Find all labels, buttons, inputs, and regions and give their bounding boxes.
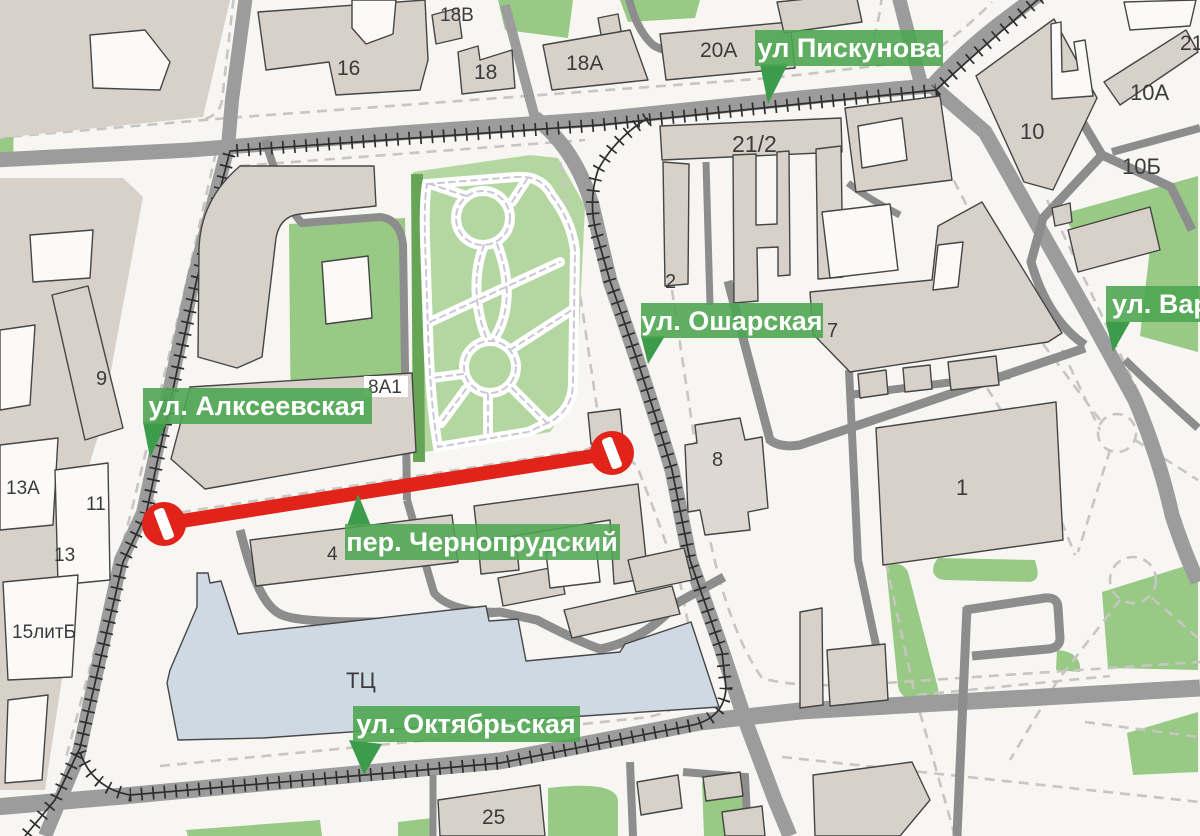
svg-text:ул. Ошарская: ул. Ошарская: [641, 306, 822, 336]
svg-text:25: 25: [482, 806, 505, 829]
svg-text:20А: 20А: [700, 39, 737, 62]
svg-text:16: 16: [337, 57, 360, 80]
svg-text:ул. Вар: ул. Вар: [1112, 289, 1200, 319]
svg-text:15литБ: 15литБ: [12, 622, 76, 643]
svg-text:9: 9: [96, 368, 107, 390]
svg-text:ул. Октябрьская: ул. Октябрьская: [356, 709, 575, 739]
svg-text:18: 18: [474, 61, 497, 84]
svg-text:21: 21: [1180, 32, 1200, 55]
svg-text:ТЦ: ТЦ: [346, 668, 376, 693]
svg-text:10: 10: [1020, 119, 1044, 144]
svg-text:4: 4: [327, 544, 338, 565]
svg-text:10Б: 10Б: [1122, 154, 1161, 179]
svg-text:ул. Алксеевская: ул. Алксеевская: [149, 391, 366, 421]
svg-text:1: 1: [956, 475, 968, 500]
svg-text:пер. Чернопрудский: пер. Чернопрудский: [346, 527, 617, 557]
svg-text:18В: 18В: [440, 5, 474, 26]
svg-text:13А: 13А: [6, 478, 40, 499]
svg-text:10А: 10А: [1130, 80, 1169, 105]
svg-text:13: 13: [54, 545, 75, 566]
svg-text:2: 2: [665, 271, 676, 293]
svg-text:ул Пискунова: ул Пискунова: [758, 33, 942, 63]
svg-text:18А: 18А: [566, 52, 603, 75]
svg-text:8: 8: [712, 449, 723, 471]
svg-text:11: 11: [86, 494, 106, 515]
svg-text:8А1: 8А1: [368, 377, 402, 398]
svg-text:21/2: 21/2: [732, 131, 777, 157]
svg-text:7: 7: [827, 320, 838, 342]
